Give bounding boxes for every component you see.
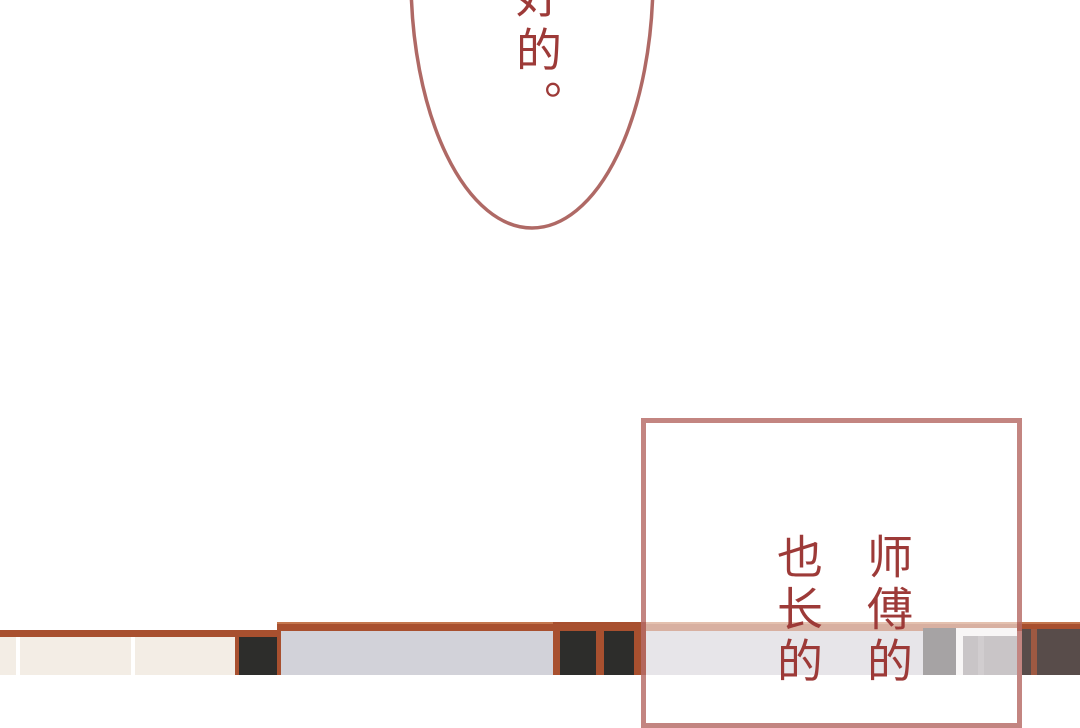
cabinet-dark-pane xyxy=(604,631,634,675)
tile-seam-line xyxy=(131,637,135,675)
caption-column-right: 师傅的 xyxy=(842,533,932,693)
caption-text: 师傅的 也长的 xyxy=(752,533,932,693)
cream-tile-wall xyxy=(0,637,235,675)
cabinet-dark-pane xyxy=(560,631,596,675)
tile-seam-line xyxy=(16,637,20,675)
comic-page: { "panel": { "speech_bubble": { "text": … xyxy=(0,0,1080,675)
dark-doorway xyxy=(239,637,277,675)
speech-bubble-text: 好的。 xyxy=(513,0,559,242)
caption-column-left: 也长的 xyxy=(752,533,842,693)
shelf-edge-left xyxy=(0,630,281,637)
wood-furniture-stripe xyxy=(1031,629,1037,675)
gray-counter-panel xyxy=(281,631,553,675)
